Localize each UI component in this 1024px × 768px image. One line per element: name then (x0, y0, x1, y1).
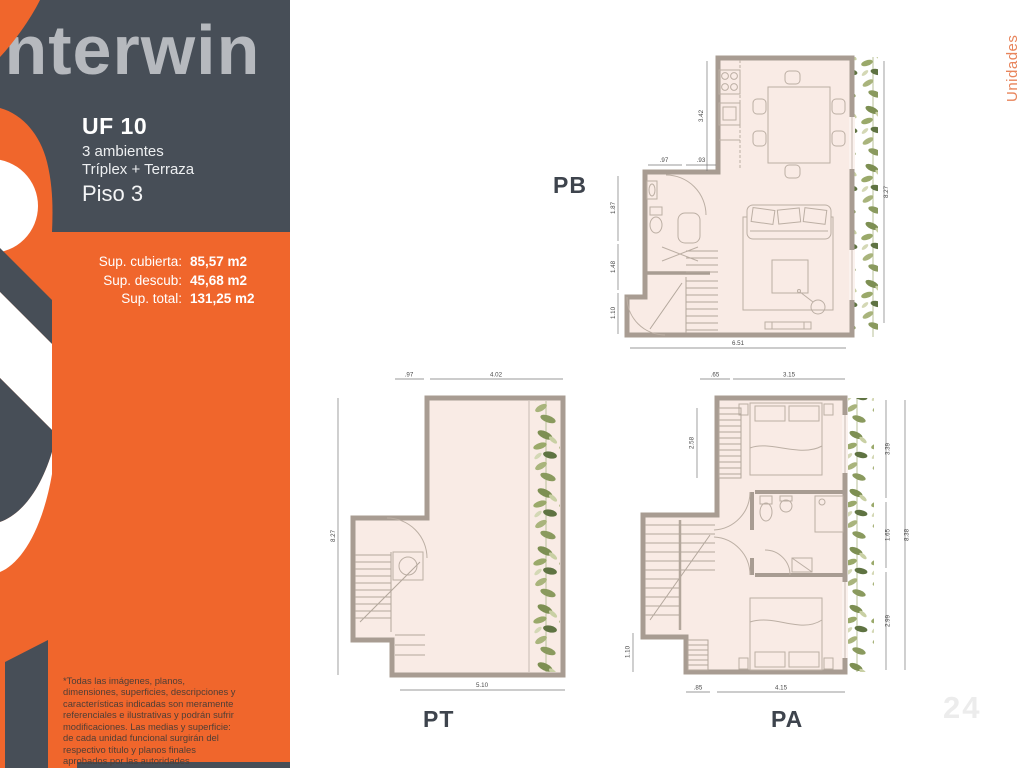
dimension-label: 1.10 (610, 306, 617, 319)
surface-label: Sup. total: (58, 290, 182, 309)
watermark-24: 24 (943, 690, 981, 726)
dimension-label: 5.10 (476, 682, 489, 689)
balcony-plants (848, 398, 874, 672)
pa-closet-bottom (688, 640, 708, 670)
surface-row: Sup. descub: 45,68 m2 (58, 272, 258, 291)
surface-value: 45,68 m2 (190, 272, 247, 291)
surface-label: Sup. cubierta: (58, 253, 182, 272)
pb-walls (627, 58, 852, 335)
dimension-label: 3.15 (783, 372, 796, 379)
balcony-plants (854, 57, 878, 337)
dimension-label: 3.39 (885, 442, 892, 455)
dimension-label: 6.51 (732, 340, 745, 347)
brand-logo: interwin (0, 10, 260, 90)
page: interwin UF 10 3 ambientes Tríplex + Ter… (0, 0, 1024, 768)
dimension-label: 8.27 (883, 185, 890, 198)
surface-value: 85,57 m2 (190, 253, 247, 272)
unit-code: UF 10 (82, 113, 147, 140)
terrace-plants (531, 401, 560, 672)
dimension-label: 8.38 (904, 528, 911, 541)
dimension-label: 8.27 (330, 529, 337, 542)
dimension-label: 1.48 (610, 260, 617, 273)
surface-row: Sup. total: 131,25 m2 (58, 290, 258, 309)
surface-row: Sup. cubierta: 85,57 m2 (58, 253, 258, 272)
dimension-label: 1.10 (625, 645, 632, 658)
unit-floor: Piso 3 (82, 181, 143, 207)
dimension-label: 2.99 (885, 614, 892, 627)
unit-rooms: 3 ambientes (82, 143, 164, 160)
dimension-label: 1.87 (610, 201, 617, 214)
dimension-label: .97 (405, 372, 414, 379)
floorplan-pt: .97 4.02 8.27 5.10 (325, 370, 585, 705)
dimension-label: .93 (697, 157, 706, 164)
legal-disclaimer: *Todas las imágenes, planos, dimensiones… (63, 675, 239, 768)
plan-label-pt: PT (423, 706, 454, 733)
dimension-label: .97 (660, 157, 669, 164)
unit-type: Tríplex + Terraza (82, 161, 194, 178)
dimension-label: 1.65 (885, 528, 892, 541)
dimension-label: .65 (711, 372, 720, 379)
surface-label: Sup. descub: (58, 272, 182, 291)
dimension-label: 4.15 (775, 685, 788, 692)
plan-label-pb: PB (553, 172, 587, 199)
unidades-tab: Unidades (1004, 35, 1021, 102)
plan-label-pa: PA (771, 706, 803, 733)
pa-walls (643, 398, 845, 672)
brand-panel: interwin UF 10 3 ambientes Tríplex + Ter… (0, 0, 290, 232)
dimension-label: 2.58 (689, 436, 696, 449)
surface-value: 131,25 m2 (190, 290, 255, 309)
floorplan-pa: .65 3.15 2.58 1.10 3.39 1.65 2.99 8.38 .… (610, 370, 920, 710)
dimension-label: 3.42 (698, 109, 705, 122)
dimension-label: 4.02 (490, 372, 503, 379)
surface-summary: Sup. cubierta: 85,57 m2 Sup. descub: 45,… (58, 253, 258, 309)
floorplan-pb: .97 .93 3.42 1.87 1.48 1.10 8.27 6.51 (600, 45, 900, 355)
dimension-label: .85 (694, 685, 703, 692)
